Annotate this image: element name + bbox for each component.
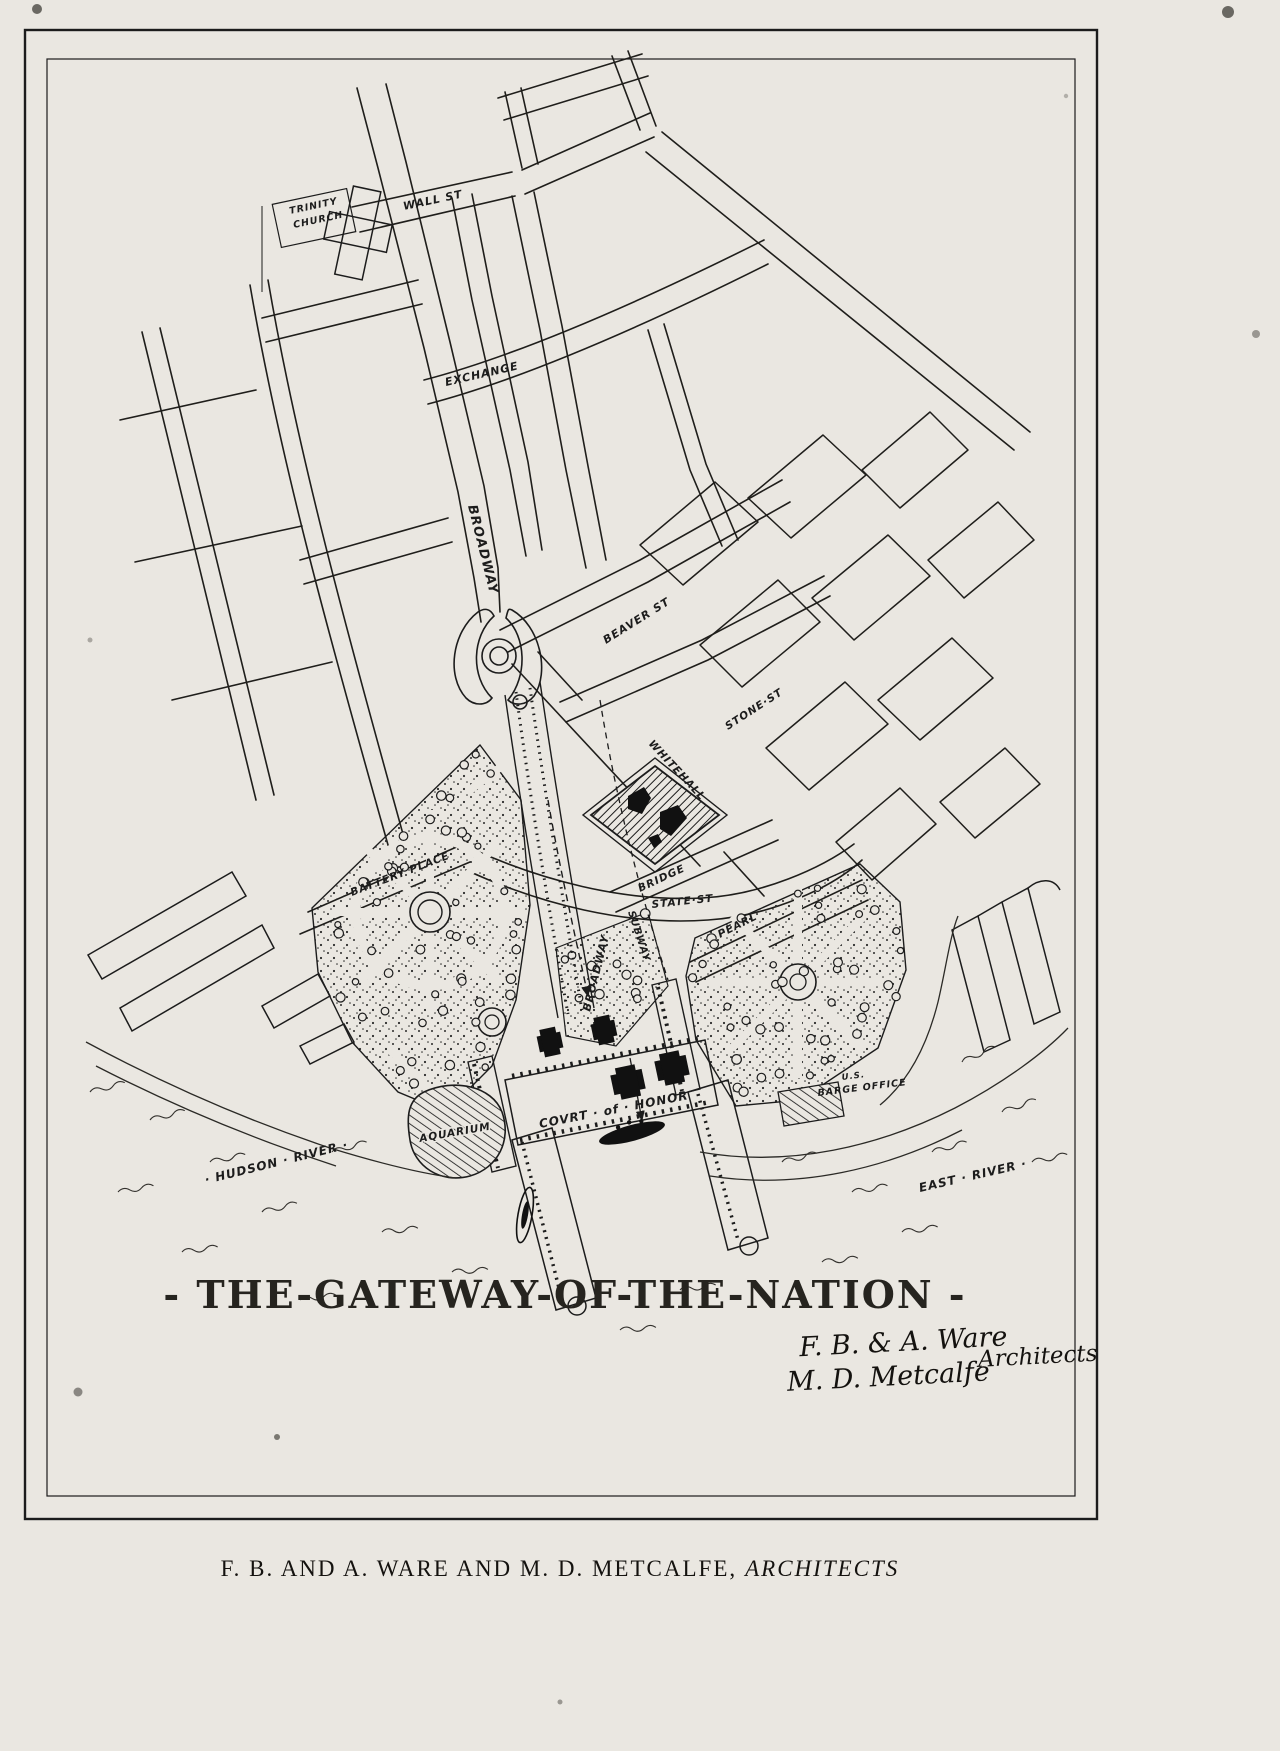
paper-background (0, 0, 1280, 1751)
plate-caption-role: ARCHITECTS (743, 1556, 899, 1581)
plate-caption: F. B. AND A. WARE AND M. D. METCALFE,ARC… (221, 1556, 900, 1581)
gateway-of-the-nation-map: TRINITY CHURCH (0, 0, 1280, 1751)
map-title: - THE-GATEWAY-OF-THE-NATION - (163, 1272, 966, 1317)
scanned-plate-page: TRINITY CHURCH (0, 0, 1280, 1751)
